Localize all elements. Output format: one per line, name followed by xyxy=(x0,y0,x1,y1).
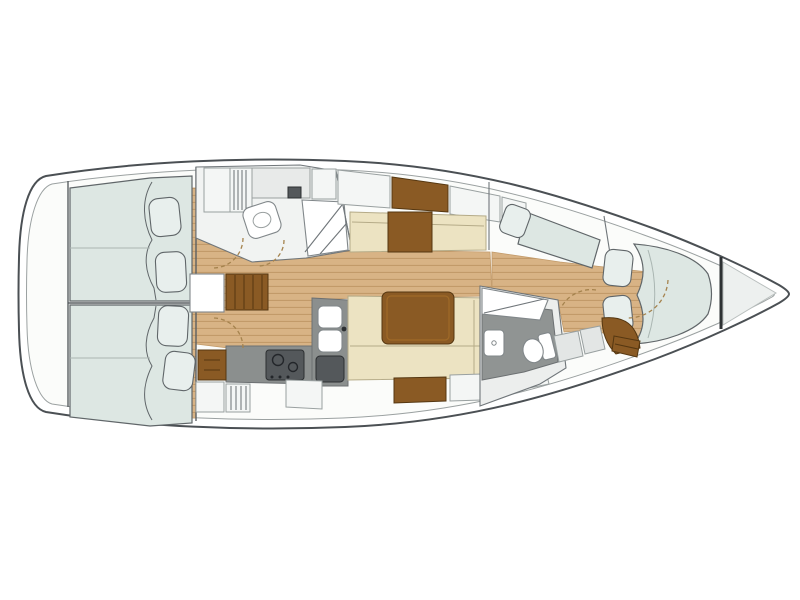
galley-sink-1 xyxy=(318,306,342,328)
v-berth-pillow-1 xyxy=(602,249,634,288)
forward-head-washbasin xyxy=(484,330,504,356)
salon-top-locker-0 xyxy=(312,169,336,199)
aft-starboard-pillow-1 xyxy=(157,305,189,347)
port-settee-cabinet xyxy=(388,212,432,252)
aft-port-pillow-1 xyxy=(148,197,182,238)
saloon-table xyxy=(382,292,454,344)
galley-drawer-cabinet xyxy=(198,350,226,380)
salon-bottom-wood-locker xyxy=(394,377,446,403)
aft-head-wardrobe xyxy=(204,168,230,212)
salon-bottom-locker-1 xyxy=(286,380,322,409)
yacht-floorplan xyxy=(0,0,800,600)
galley-locker-white xyxy=(196,382,224,412)
galley-fridge xyxy=(316,356,344,382)
aft-head-counter-basin xyxy=(288,187,301,198)
aft-cabins xyxy=(68,167,196,426)
salon-bottom-locker-2 xyxy=(450,374,482,401)
galley-sink-2 xyxy=(318,330,342,352)
stove-knob-2 xyxy=(279,376,282,379)
galley-faucet xyxy=(342,327,347,332)
aft-port-pillow-2 xyxy=(155,251,187,293)
yacht-floorplan-page xyxy=(0,0,800,600)
galley-stove xyxy=(266,350,304,380)
aft-head-hanging-locker xyxy=(230,168,252,212)
engine-access-hatch xyxy=(190,274,224,312)
forward-head-locker-2 xyxy=(580,326,605,354)
salon-top-locker-1 xyxy=(338,170,390,208)
aft-starboard-pillow-2 xyxy=(162,350,196,391)
forward-head-locker-1 xyxy=(554,331,583,362)
stove-knob-3 xyxy=(287,376,290,379)
stove-knob-1 xyxy=(271,376,274,379)
companionway xyxy=(190,274,268,312)
